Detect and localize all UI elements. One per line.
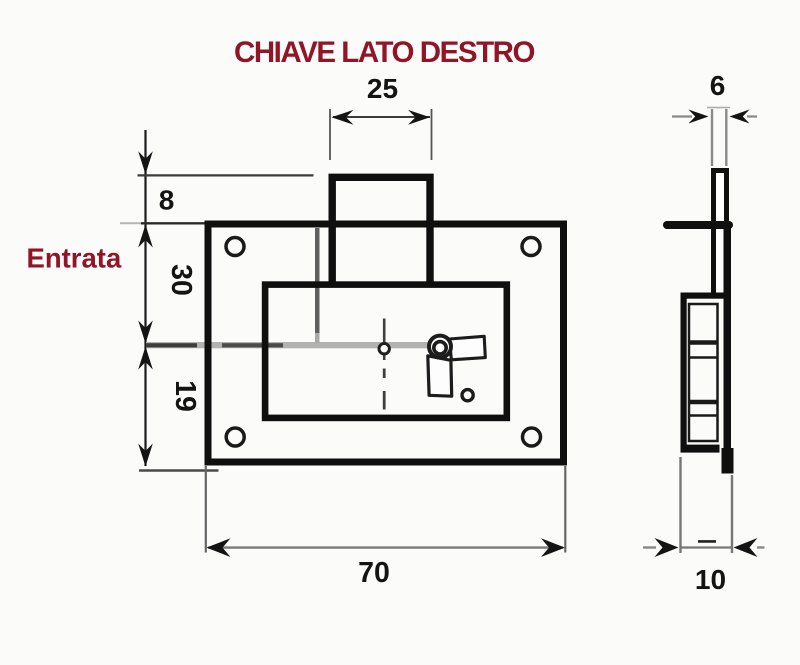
svg-text:10: 10 xyxy=(695,564,726,595)
svg-text:Entrata: Entrata xyxy=(27,243,122,274)
svg-text:CHIAVE LATO DESTRO: CHIAVE LATO DESTRO xyxy=(234,36,535,69)
svg-text:19: 19 xyxy=(169,380,201,412)
svg-text:8: 8 xyxy=(159,185,175,216)
svg-text:6: 6 xyxy=(710,70,726,101)
svg-text:25: 25 xyxy=(367,73,398,104)
svg-text:30: 30 xyxy=(165,264,197,296)
svg-text:70: 70 xyxy=(358,557,390,589)
